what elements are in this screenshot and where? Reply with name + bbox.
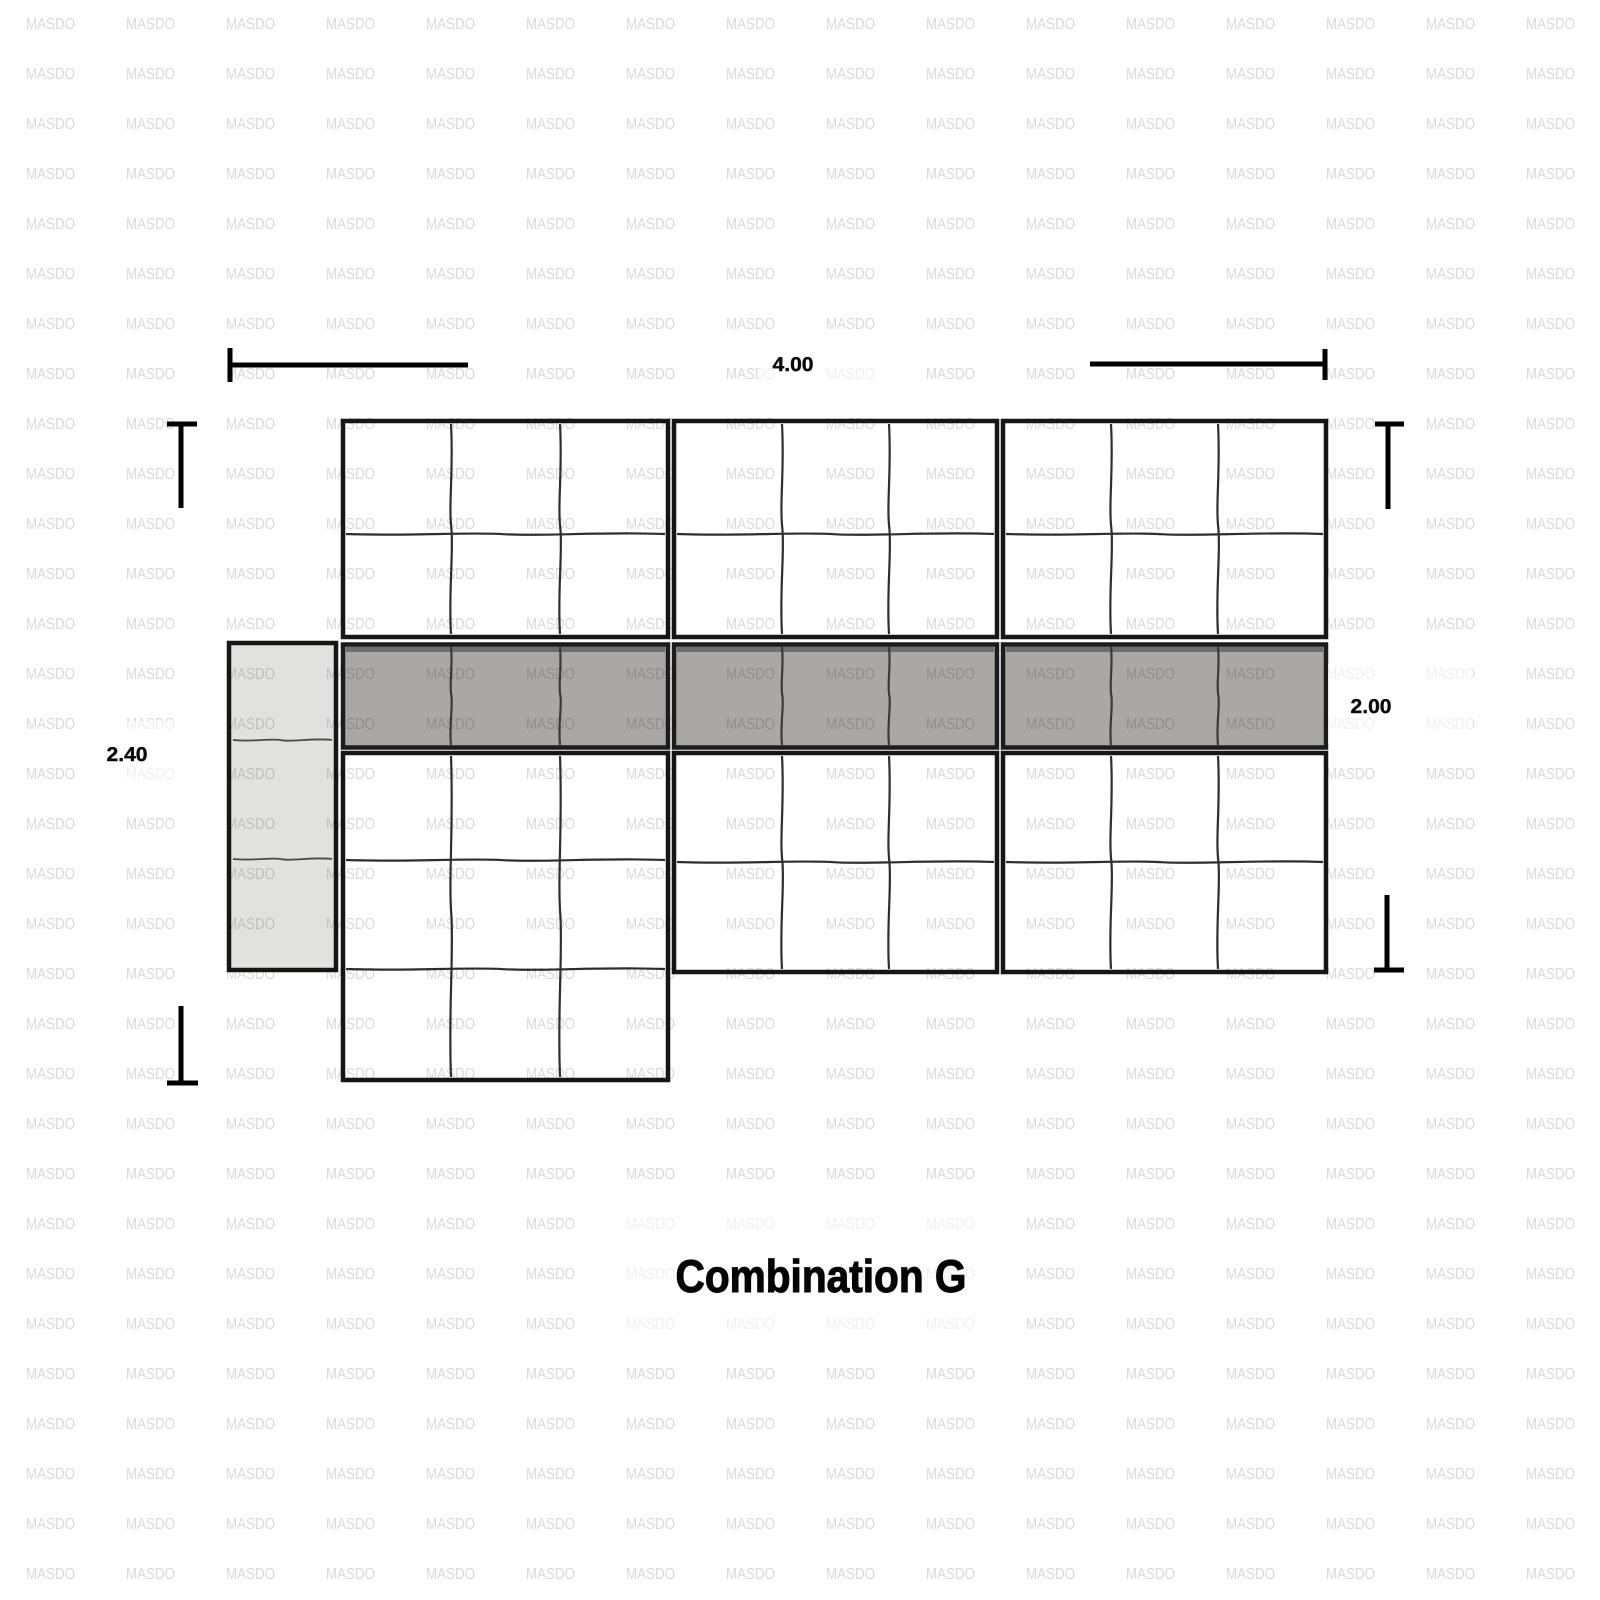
svg-text:2.40: 2.40 [107, 744, 148, 766]
svg-text:4.00: 4.00 [773, 354, 814, 376]
svg-text:2.00: 2.00 [1351, 696, 1392, 718]
svg-text:Combination G: Combination G [676, 1250, 967, 1302]
